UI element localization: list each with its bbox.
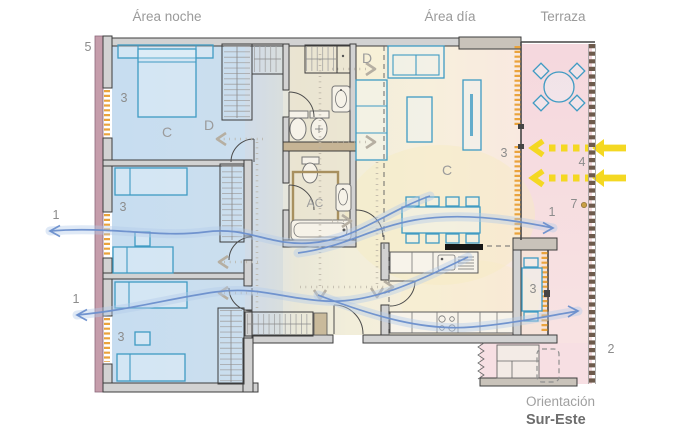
room-label-ac: AC (307, 196, 324, 210)
party-wall-strip (95, 36, 103, 392)
area-label-night: Área noche (132, 9, 201, 24)
single-bed (117, 354, 185, 381)
marker-1: 1 (53, 208, 60, 222)
shelf-unit (356, 80, 387, 160)
bath-divider-wall (283, 142, 356, 151)
room-label-d: D (204, 117, 214, 133)
marker-4: 4 (579, 155, 586, 169)
washbasin (336, 184, 351, 211)
area-label-day: Área día (424, 9, 476, 24)
room-label-bedroom: C (162, 124, 172, 140)
marker-5: 5 (85, 40, 92, 54)
coffee-table (407, 97, 432, 142)
nightstand (135, 332, 150, 345)
orientation-value: Sur-Este (526, 412, 586, 428)
sunlight-arrow-solid (592, 139, 626, 187)
marker-3: 3 (118, 330, 125, 344)
marker-1: 1 (549, 205, 556, 219)
tv-unit (463, 80, 481, 150)
marker-1: 1 (73, 292, 80, 306)
cooker-hood-bar (445, 244, 483, 250)
area-label-terrace: Terraza (540, 9, 586, 24)
marker-7: 7 (571, 197, 578, 211)
toilet (302, 157, 319, 183)
sofa (388, 46, 444, 78)
marker-2: 2 (608, 342, 615, 356)
floor-plan-image: Área noche Área día Terraza 5 3 3 3 1 1 … (0, 0, 677, 438)
single-bed (115, 168, 187, 195)
sensor-dot (581, 202, 586, 207)
marker-3: 3 (120, 200, 127, 214)
terrace-round-table (544, 72, 574, 102)
single-bed (113, 247, 173, 273)
room-label-d: D (362, 50, 372, 66)
marker-3: 3 (121, 91, 128, 105)
floor-plan-svg: Área noche Área día Terraza 5 3 3 3 1 1 … (0, 0, 677, 438)
marker-3: 3 (530, 282, 537, 296)
room-label-living: C (442, 162, 452, 178)
marker-3: 3 (501, 146, 508, 160)
washbasin (332, 86, 350, 112)
orientation-label: Orientación (526, 394, 595, 409)
terrace-door-leaf (518, 124, 524, 129)
